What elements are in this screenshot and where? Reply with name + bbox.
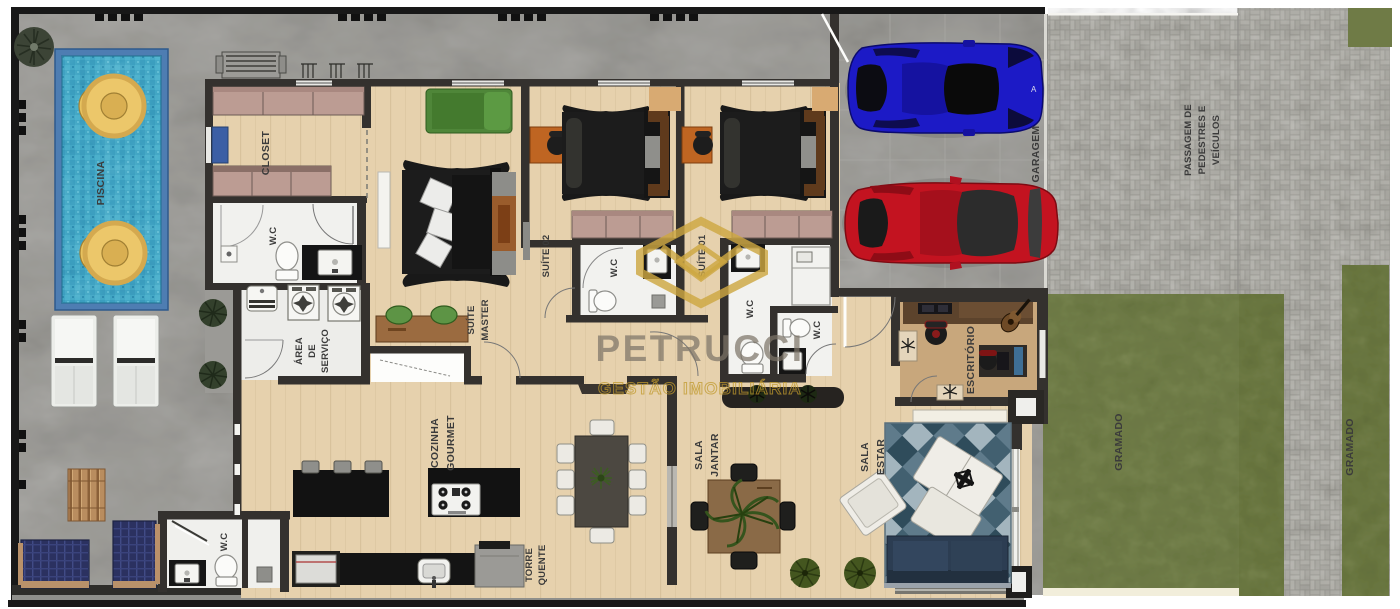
svg-text:ESCRITÓRIO: ESCRITÓRIO — [964, 326, 977, 394]
svg-text:W.C: W.C — [745, 300, 756, 319]
svg-text:GESTÃO IMOBILIÁRIA: GESTÃO IMOBILIÁRIA — [598, 378, 802, 398]
svg-text:MASTER: MASTER — [480, 299, 491, 340]
svg-text:SERVIÇO: SERVIÇO — [320, 329, 331, 373]
svg-text:GRAMADO: GRAMADO — [1344, 418, 1356, 476]
svg-text:JANTAR: JANTAR — [709, 433, 721, 477]
svg-text:SALA: SALA — [693, 440, 705, 470]
svg-text:W.C: W.C — [268, 227, 279, 246]
svg-text:SUÍTE: SUÍTE — [466, 306, 477, 335]
svg-text:W.C: W.C — [219, 533, 230, 552]
svg-text:PASSAGEM DE: PASSAGEM DE — [1183, 104, 1194, 176]
svg-text:PISCINA: PISCINA — [95, 161, 107, 206]
svg-text:COZINHA: COZINHA — [429, 418, 441, 468]
svg-text:SALA: SALA — [859, 442, 871, 472]
svg-text:SUÍTE 02: SUÍTE 02 — [541, 235, 552, 278]
svg-text:GARAGEM: GARAGEM — [1030, 126, 1042, 183]
svg-text:PEDESTRES E: PEDESTRES E — [1197, 106, 1208, 175]
svg-text:GOURMET: GOURMET — [445, 415, 457, 471]
svg-text:W.C: W.C — [609, 259, 620, 278]
svg-text:A: A — [1031, 85, 1037, 94]
svg-text:PETRUCCI: PETRUCCI — [595, 328, 804, 369]
svg-text:CLOSET: CLOSET — [260, 131, 272, 176]
svg-text:ÁREA: ÁREA — [294, 337, 305, 365]
svg-text:DE: DE — [307, 344, 318, 358]
svg-text:W.C: W.C — [812, 321, 823, 340]
svg-text:QUENTE: QUENTE — [537, 545, 548, 586]
svg-text:ESTAR: ESTAR — [875, 439, 887, 475]
svg-text:TORRE: TORRE — [524, 548, 535, 582]
svg-text:VEÍCULOS: VEÍCULOS — [1211, 115, 1222, 165]
svg-text:GRAMADO: GRAMADO — [1113, 413, 1125, 471]
